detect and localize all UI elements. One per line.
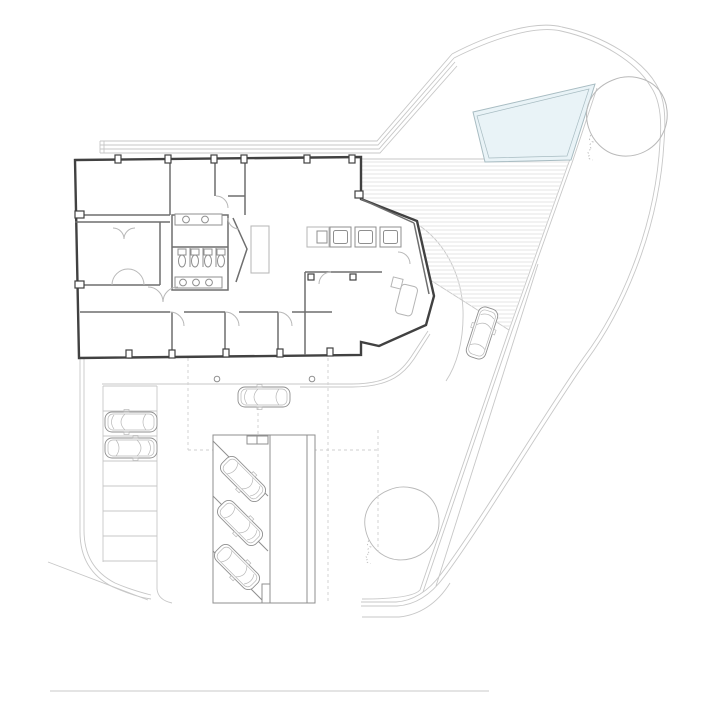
building-envelope: [75, 157, 434, 358]
architectural-site-plan: [0, 0, 720, 720]
site-plan-canvas: [0, 0, 720, 720]
car-left-stall-2: [105, 436, 157, 461]
building-plan: [75, 155, 434, 358]
column-marker: [214, 376, 220, 382]
car-driveway: [462, 304, 502, 361]
tree-north: [587, 77, 668, 160]
car-left-stall-1: [105, 410, 157, 435]
car-entry-drive: [238, 385, 290, 410]
column-marker: [309, 376, 315, 382]
left-road: [80, 358, 151, 599]
tree-south: [365, 487, 439, 564]
diagonal-kerb: [48, 562, 148, 600]
